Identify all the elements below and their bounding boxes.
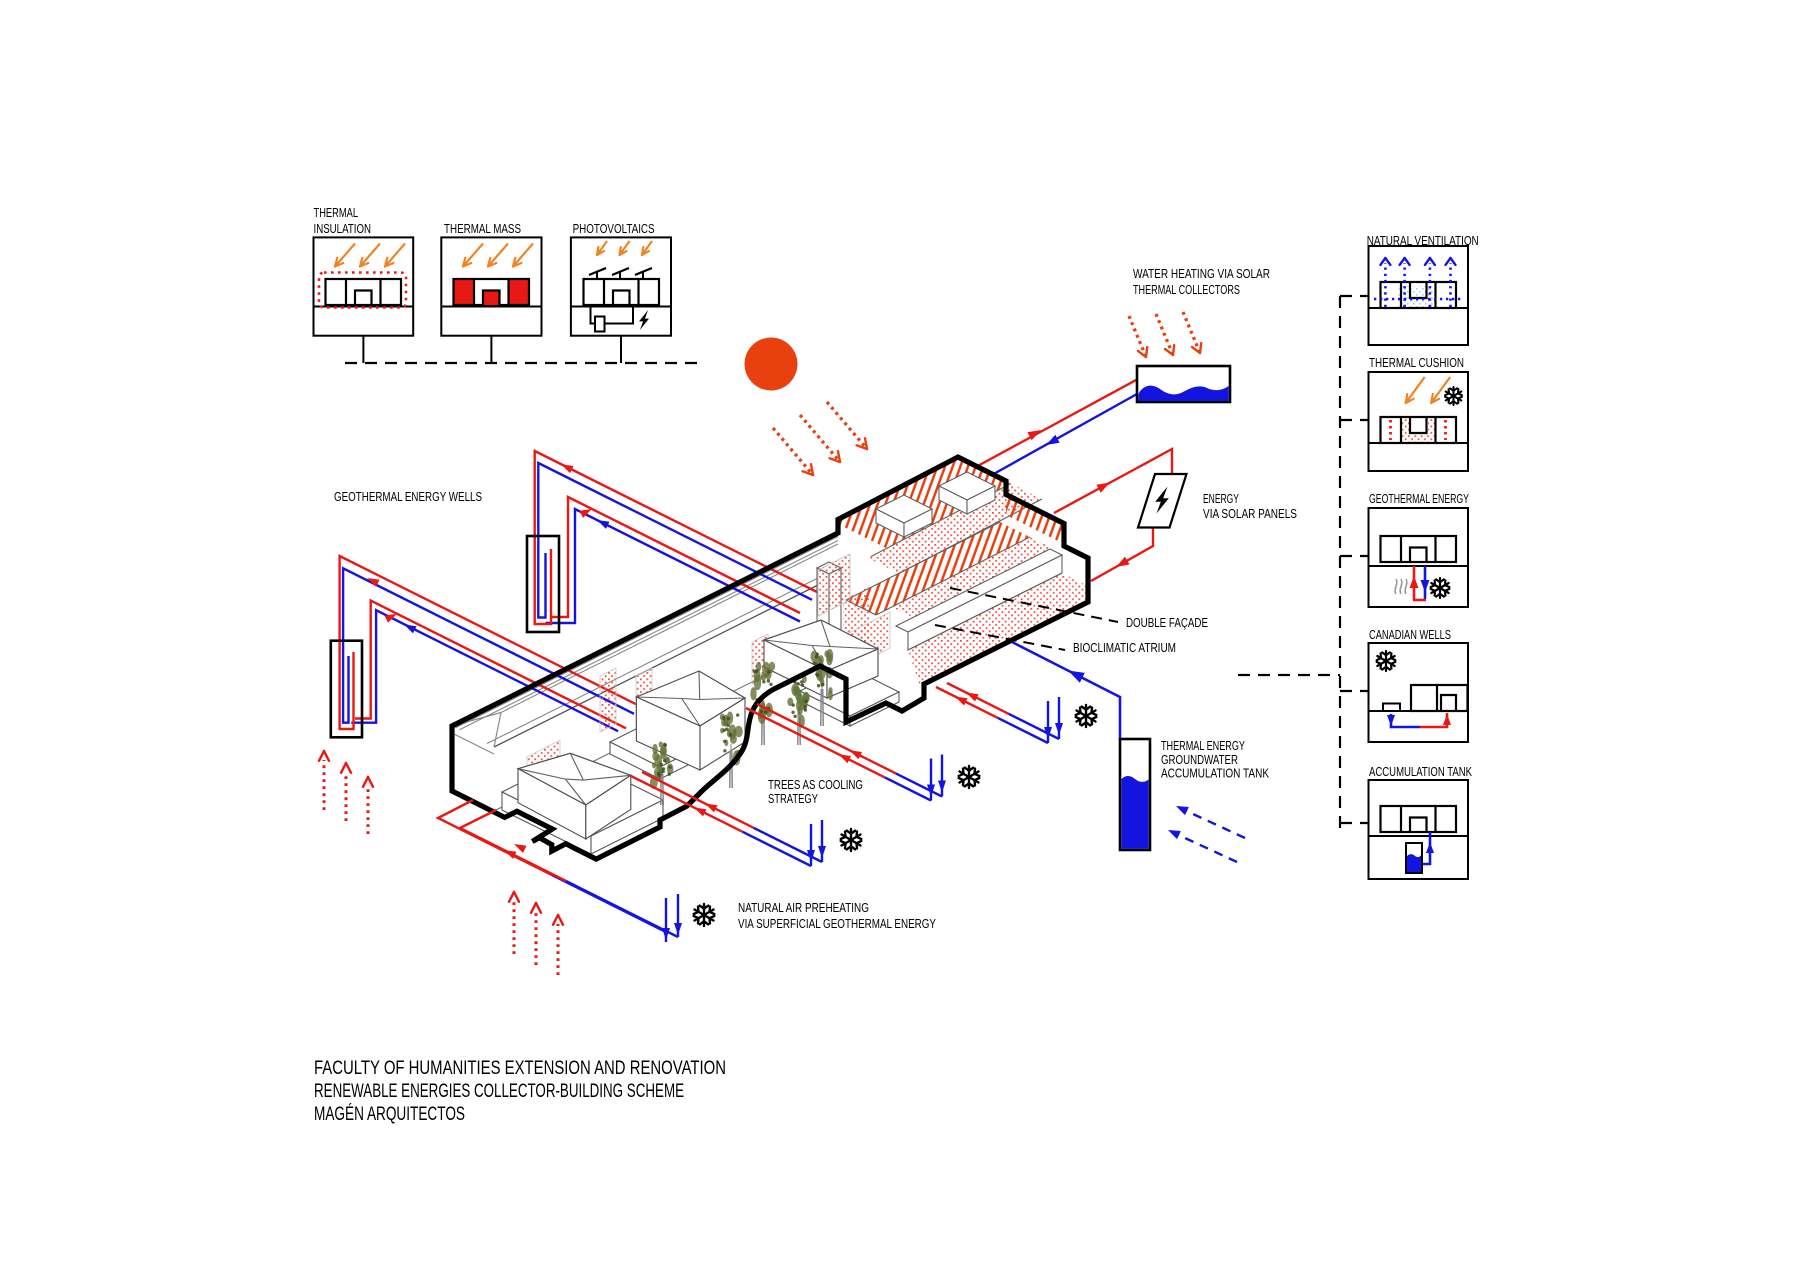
svg-text:THERMAL MASS: THERMAL MASS <box>444 221 521 236</box>
svg-text:WATER HEATING VIA SOLAR: WATER HEATING VIA SOLAR <box>1133 266 1270 281</box>
svg-text:TREES AS COOLING: TREES AS COOLING <box>768 777 863 792</box>
svg-text:THERMAL COLLECTORS: THERMAL COLLECTORS <box>1133 282 1240 297</box>
svg-text:GEOTHERMAL ENERGY: GEOTHERMAL ENERGY <box>1369 491 1469 506</box>
svg-text:RENEWABLE ENERGIES COLLECTOR-B: RENEWABLE ENERGIES COLLECTOR-BUILDING SC… <box>314 1081 684 1102</box>
svg-text:CANADIAN WELLS: CANADIAN WELLS <box>1369 627 1451 642</box>
svg-text:THERMAL ENERGY: THERMAL ENERGY <box>1161 738 1245 753</box>
svg-text:ACCUMULATION TANK: ACCUMULATION TANK <box>1161 766 1269 781</box>
svg-text:ACCUMULATION TANK: ACCUMULATION TANK <box>1369 764 1472 779</box>
svg-text:GEOTHERMAL ENERGY WELLS: GEOTHERMAL ENERGY WELLS <box>334 489 482 504</box>
svg-text:PHOTOVOLTAICS: PHOTOVOLTAICS <box>573 221 655 236</box>
svg-text:DOUBLE FAÇADE: DOUBLE FAÇADE <box>1126 615 1208 630</box>
svg-text:ENERGY: ENERGY <box>1203 491 1239 506</box>
svg-text:THERMAL CUSHION: THERMAL CUSHION <box>1369 355 1464 370</box>
svg-text:THERMAL: THERMAL <box>314 205 359 220</box>
svg-text:VIA SUPERFICIAL GEOTHERMAL ENE: VIA SUPERFICIAL GEOTHERMAL ENERGY <box>738 916 936 931</box>
svg-text:BIOCLIMATIC ATRIUM: BIOCLIMATIC ATRIUM <box>1073 640 1176 655</box>
svg-text:NATURAL AIR PREHEATING: NATURAL AIR PREHEATING <box>738 900 869 915</box>
svg-text:INSULATION: INSULATION <box>314 221 372 236</box>
svg-text:MAGÉN ARQUITECTOS: MAGÉN ARQUITECTOS <box>314 1104 465 1125</box>
svg-text:FACULTY OF HUMANITIES EXTENSIO: FACULTY OF HUMANITIES EXTENSION AND RENO… <box>314 1058 726 1079</box>
svg-text:STRATEGY: STRATEGY <box>768 791 818 806</box>
svg-text:VIA SOLAR PANELS: VIA SOLAR PANELS <box>1203 506 1297 521</box>
